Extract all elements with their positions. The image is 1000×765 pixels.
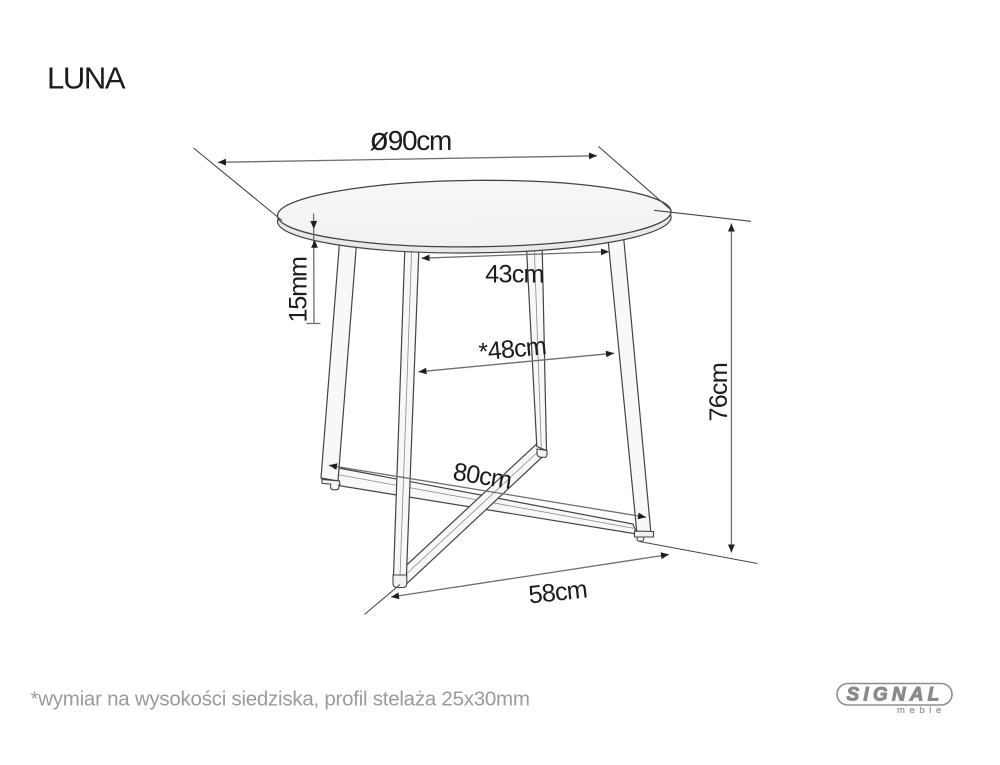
svg-text:ø90cm: ø90cm: [370, 121, 452, 157]
svg-text:76cm: 76cm: [705, 363, 733, 421]
svg-text:*wymiar na wysokości siedziska: *wymiar na wysokości siedziska, profil s…: [31, 688, 530, 711]
svg-text:meble: meble: [897, 705, 946, 716]
svg-text:15mm: 15mm: [285, 257, 313, 322]
svg-text:SIGNAL: SIGNAL: [847, 685, 944, 706]
svg-text:43cm: 43cm: [485, 260, 543, 288]
svg-text:LUNA: LUNA: [47, 60, 126, 95]
